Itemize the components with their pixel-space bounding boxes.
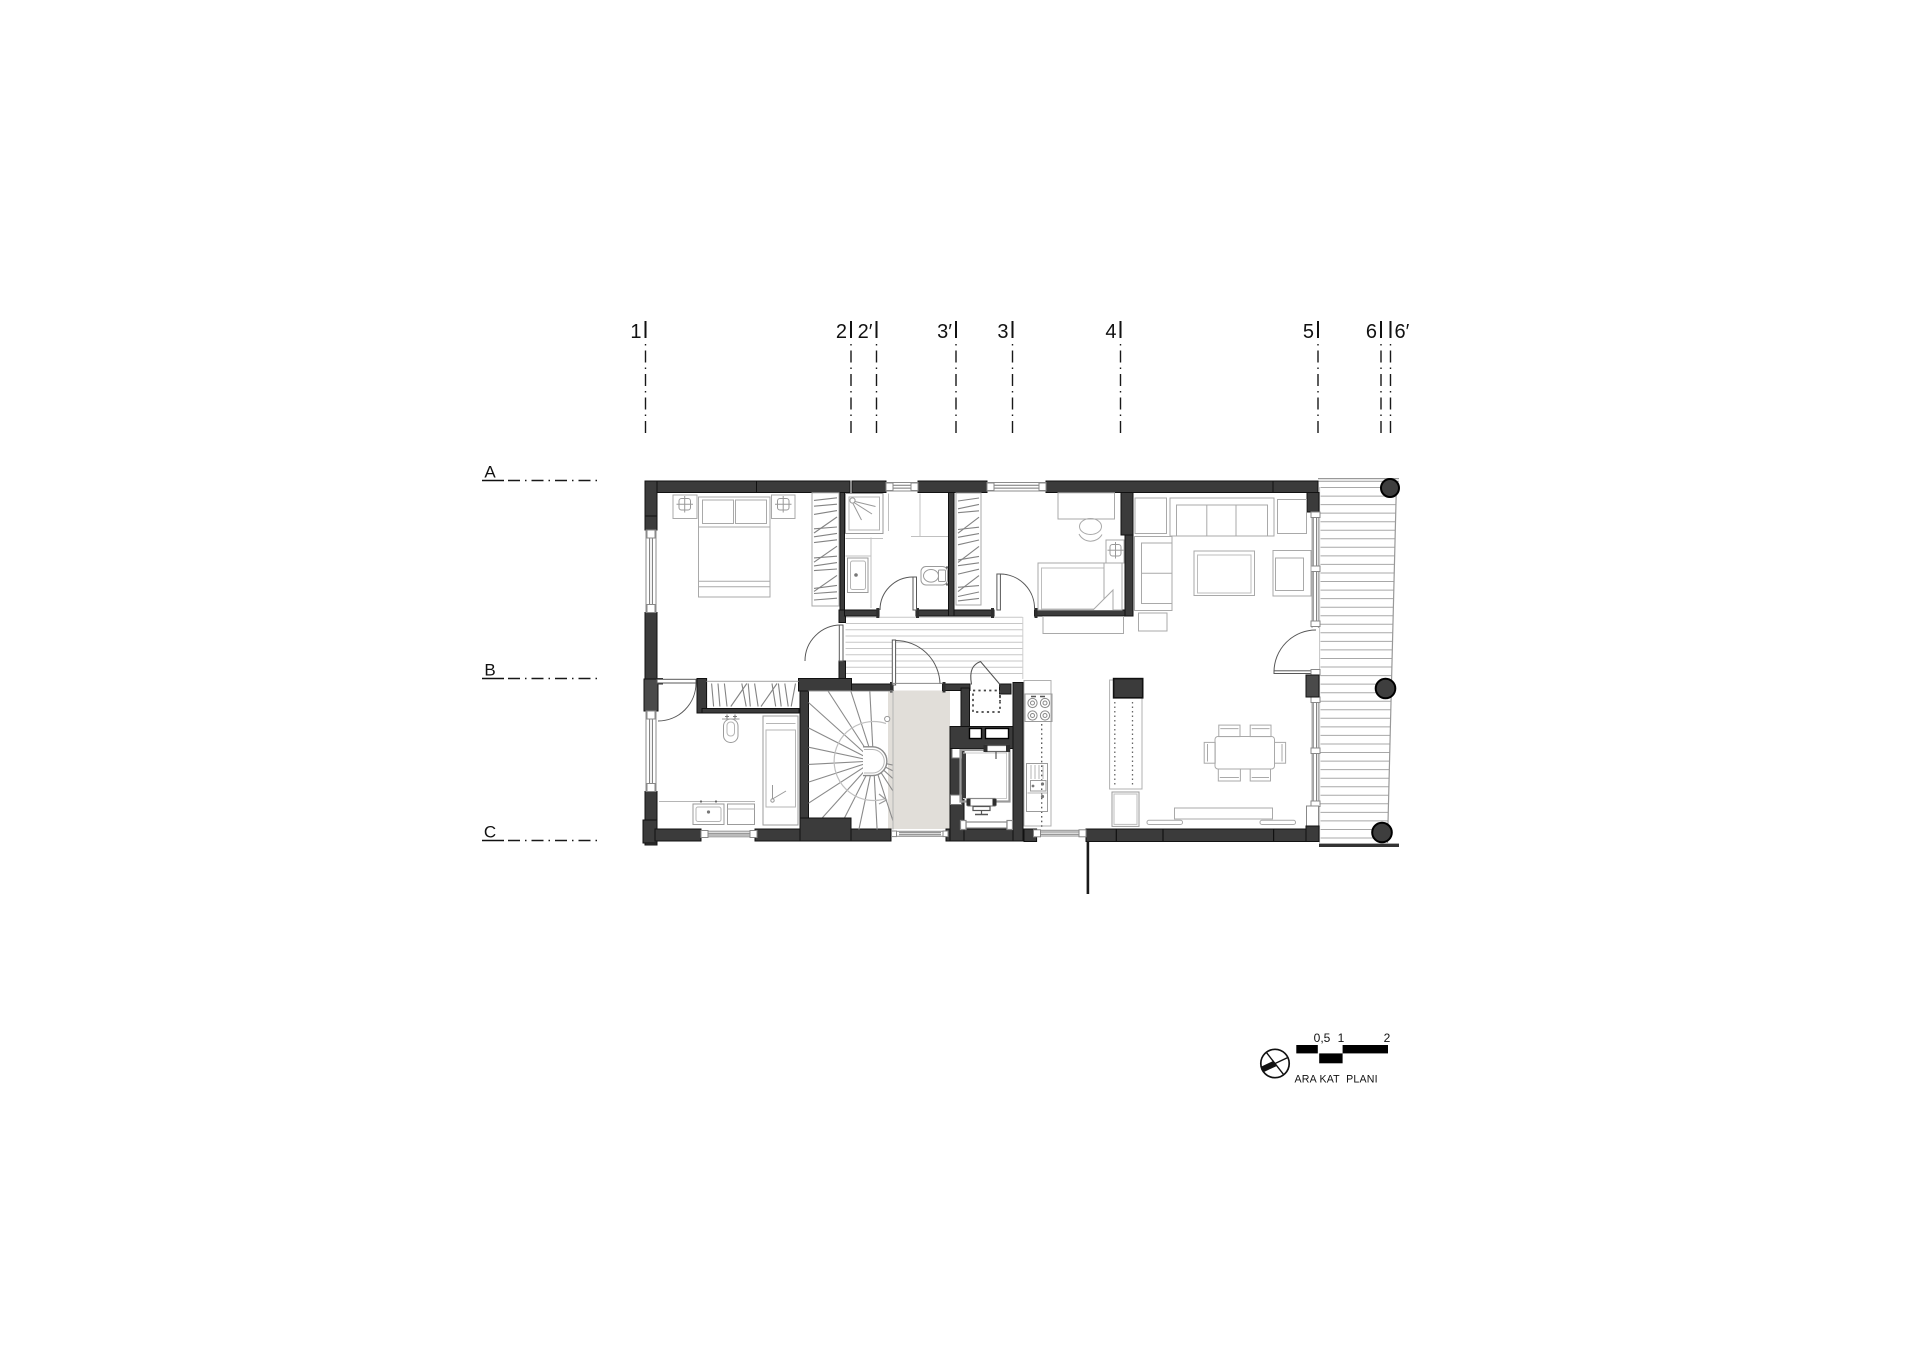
svg-text:2: 2 [1384, 1031, 1391, 1045]
svg-text:ARA KAT PLANI: ARA KAT PLANI [1295, 1073, 1378, 1085]
svg-text:6: 6 [1366, 321, 1377, 343]
svg-text:3: 3 [997, 321, 1008, 343]
svg-text:1: 1 [1338, 1031, 1345, 1045]
svg-text:2′: 2′ [858, 321, 873, 343]
svg-text:0,5: 0,5 [1314, 1031, 1331, 1045]
svg-text:B: B [484, 661, 495, 680]
svg-text:4: 4 [1105, 321, 1116, 343]
svg-text:2: 2 [836, 321, 847, 343]
svg-text:1: 1 [630, 321, 641, 343]
svg-text:5: 5 [1303, 321, 1314, 343]
svg-text:A: A [484, 463, 496, 482]
svg-text:6′: 6′ [1395, 321, 1410, 343]
svg-text:C: C [484, 823, 496, 842]
svg-text:3′: 3′ [937, 321, 952, 343]
